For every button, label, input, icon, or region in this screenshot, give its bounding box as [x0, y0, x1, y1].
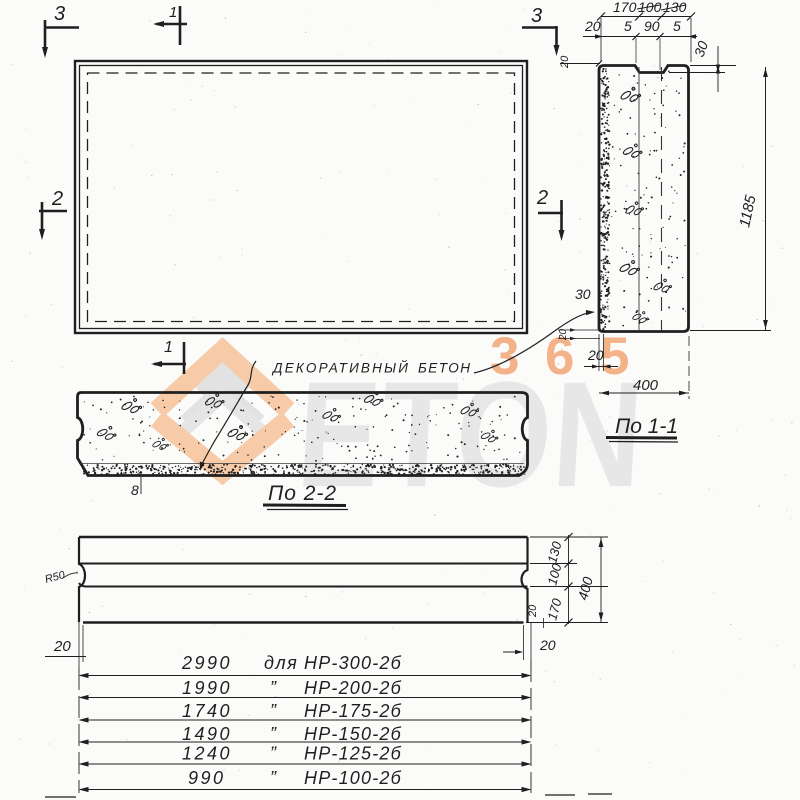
- svg-text:НР-200-2б: НР-200-2б: [304, 678, 402, 698]
- svg-text:НР-100-2б: НР-100-2б: [304, 768, 402, 788]
- svg-text:990: 990: [188, 768, 226, 788]
- svg-text:20: 20: [539, 637, 556, 653]
- svg-text:8: 8: [131, 482, 139, 498]
- svg-text:1: 1: [164, 339, 173, 356]
- svg-text:100: 100: [638, 0, 662, 15]
- svg-text:30: 30: [575, 286, 591, 302]
- svg-text:2: 2: [51, 188, 63, 210]
- svg-text:НР-300-2б: НР-300-2б: [304, 653, 402, 673]
- svg-text:”: ”: [270, 701, 278, 721]
- svg-text:90: 90: [644, 18, 660, 34]
- svg-text:2990: 2990: [181, 653, 232, 673]
- svg-text:1: 1: [169, 4, 177, 21]
- svg-text:20: 20: [587, 347, 604, 363]
- svg-text:По 2-2: По 2-2: [268, 482, 337, 505]
- svg-text:для: для: [264, 653, 298, 673]
- svg-text:1240: 1240: [182, 744, 232, 764]
- svg-text:НР-125-2б: НР-125-2б: [304, 744, 402, 764]
- svg-text:20: 20: [527, 604, 539, 618]
- svg-text:ДЕКОРАТИВНЫЙ: ДЕКОРАТИВНЫЙ: [271, 360, 410, 376]
- svg-text:1740: 1740: [182, 701, 232, 721]
- svg-text:20: 20: [559, 55, 571, 69]
- svg-text:3: 3: [531, 5, 542, 27]
- svg-text:”: ”: [270, 744, 278, 764]
- svg-text:”: ”: [270, 724, 278, 744]
- svg-text:5: 5: [624, 18, 632, 34]
- svg-text:2: 2: [536, 187, 548, 209]
- svg-text:170: 170: [613, 0, 637, 15]
- svg-text:”: ”: [270, 768, 278, 788]
- svg-text:20: 20: [558, 328, 569, 341]
- svg-text:5: 5: [673, 18, 681, 34]
- svg-text:НР-175-2б: НР-175-2б: [304, 701, 402, 721]
- svg-text:БЕТОН: БЕТОН: [418, 361, 472, 376]
- svg-text:НР-150-2б: НР-150-2б: [304, 724, 402, 744]
- svg-text:400: 400: [633, 377, 659, 394]
- svg-text:”: ”: [270, 678, 278, 698]
- svg-text:1490: 1490: [182, 724, 232, 744]
- svg-text:3: 3: [54, 3, 65, 25]
- svg-text:По 1-1: По 1-1: [615, 415, 678, 438]
- svg-text:1990: 1990: [182, 678, 232, 698]
- svg-text:20: 20: [584, 18, 601, 34]
- svg-text:20: 20: [53, 638, 71, 655]
